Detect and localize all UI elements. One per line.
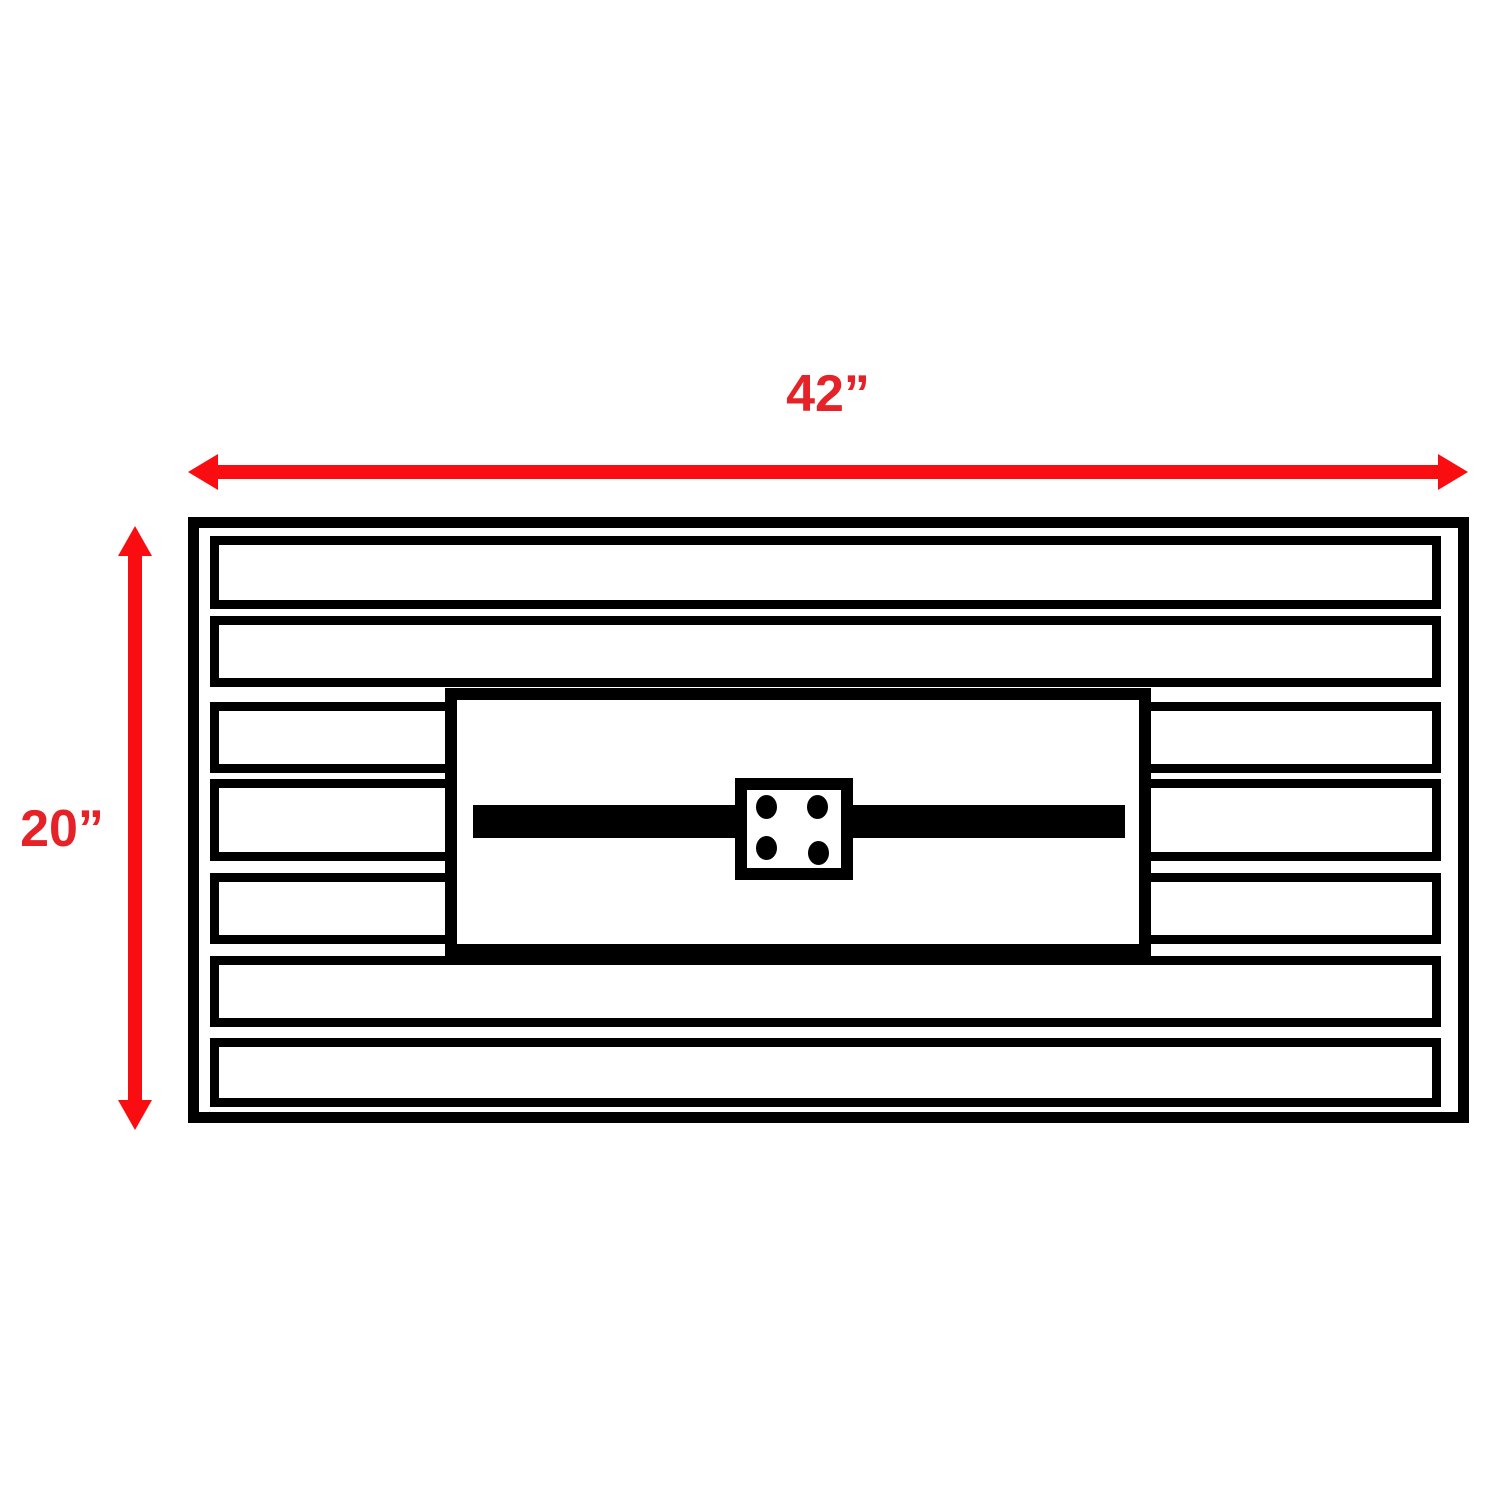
burner-port-dot — [808, 841, 829, 865]
burner-plate — [735, 778, 853, 880]
width-arrow-shaft — [216, 465, 1440, 479]
slat-row-6 — [210, 956, 1441, 1027]
arrow-right-head-icon — [1438, 454, 1468, 490]
slat-row-2 — [210, 616, 1441, 687]
slat-row-4-left — [210, 779, 457, 861]
slat-row-1 — [210, 536, 1441, 609]
slat-row-3-right — [1139, 702, 1441, 773]
burner-port-dot — [756, 836, 777, 860]
slat-row-4-right — [1139, 779, 1441, 861]
burner-port-dot — [756, 795, 777, 819]
slat-row-3-left — [210, 702, 457, 773]
width-dimension-label: 42” — [188, 368, 1468, 420]
slat-row-5-left — [210, 873, 457, 944]
slat-row-5-right — [1139, 873, 1441, 944]
burner-port-dot — [807, 795, 828, 819]
arrow-left-head-icon — [188, 454, 218, 490]
arrow-down-head-icon — [118, 1100, 152, 1130]
height-dimension-label: 20” — [14, 803, 110, 855]
slat-row-7 — [210, 1038, 1441, 1107]
diagram-canvas: 42” 20” — [0, 0, 1500, 1500]
height-arrow-shaft — [128, 554, 142, 1103]
arrow-up-head-icon — [118, 526, 152, 556]
